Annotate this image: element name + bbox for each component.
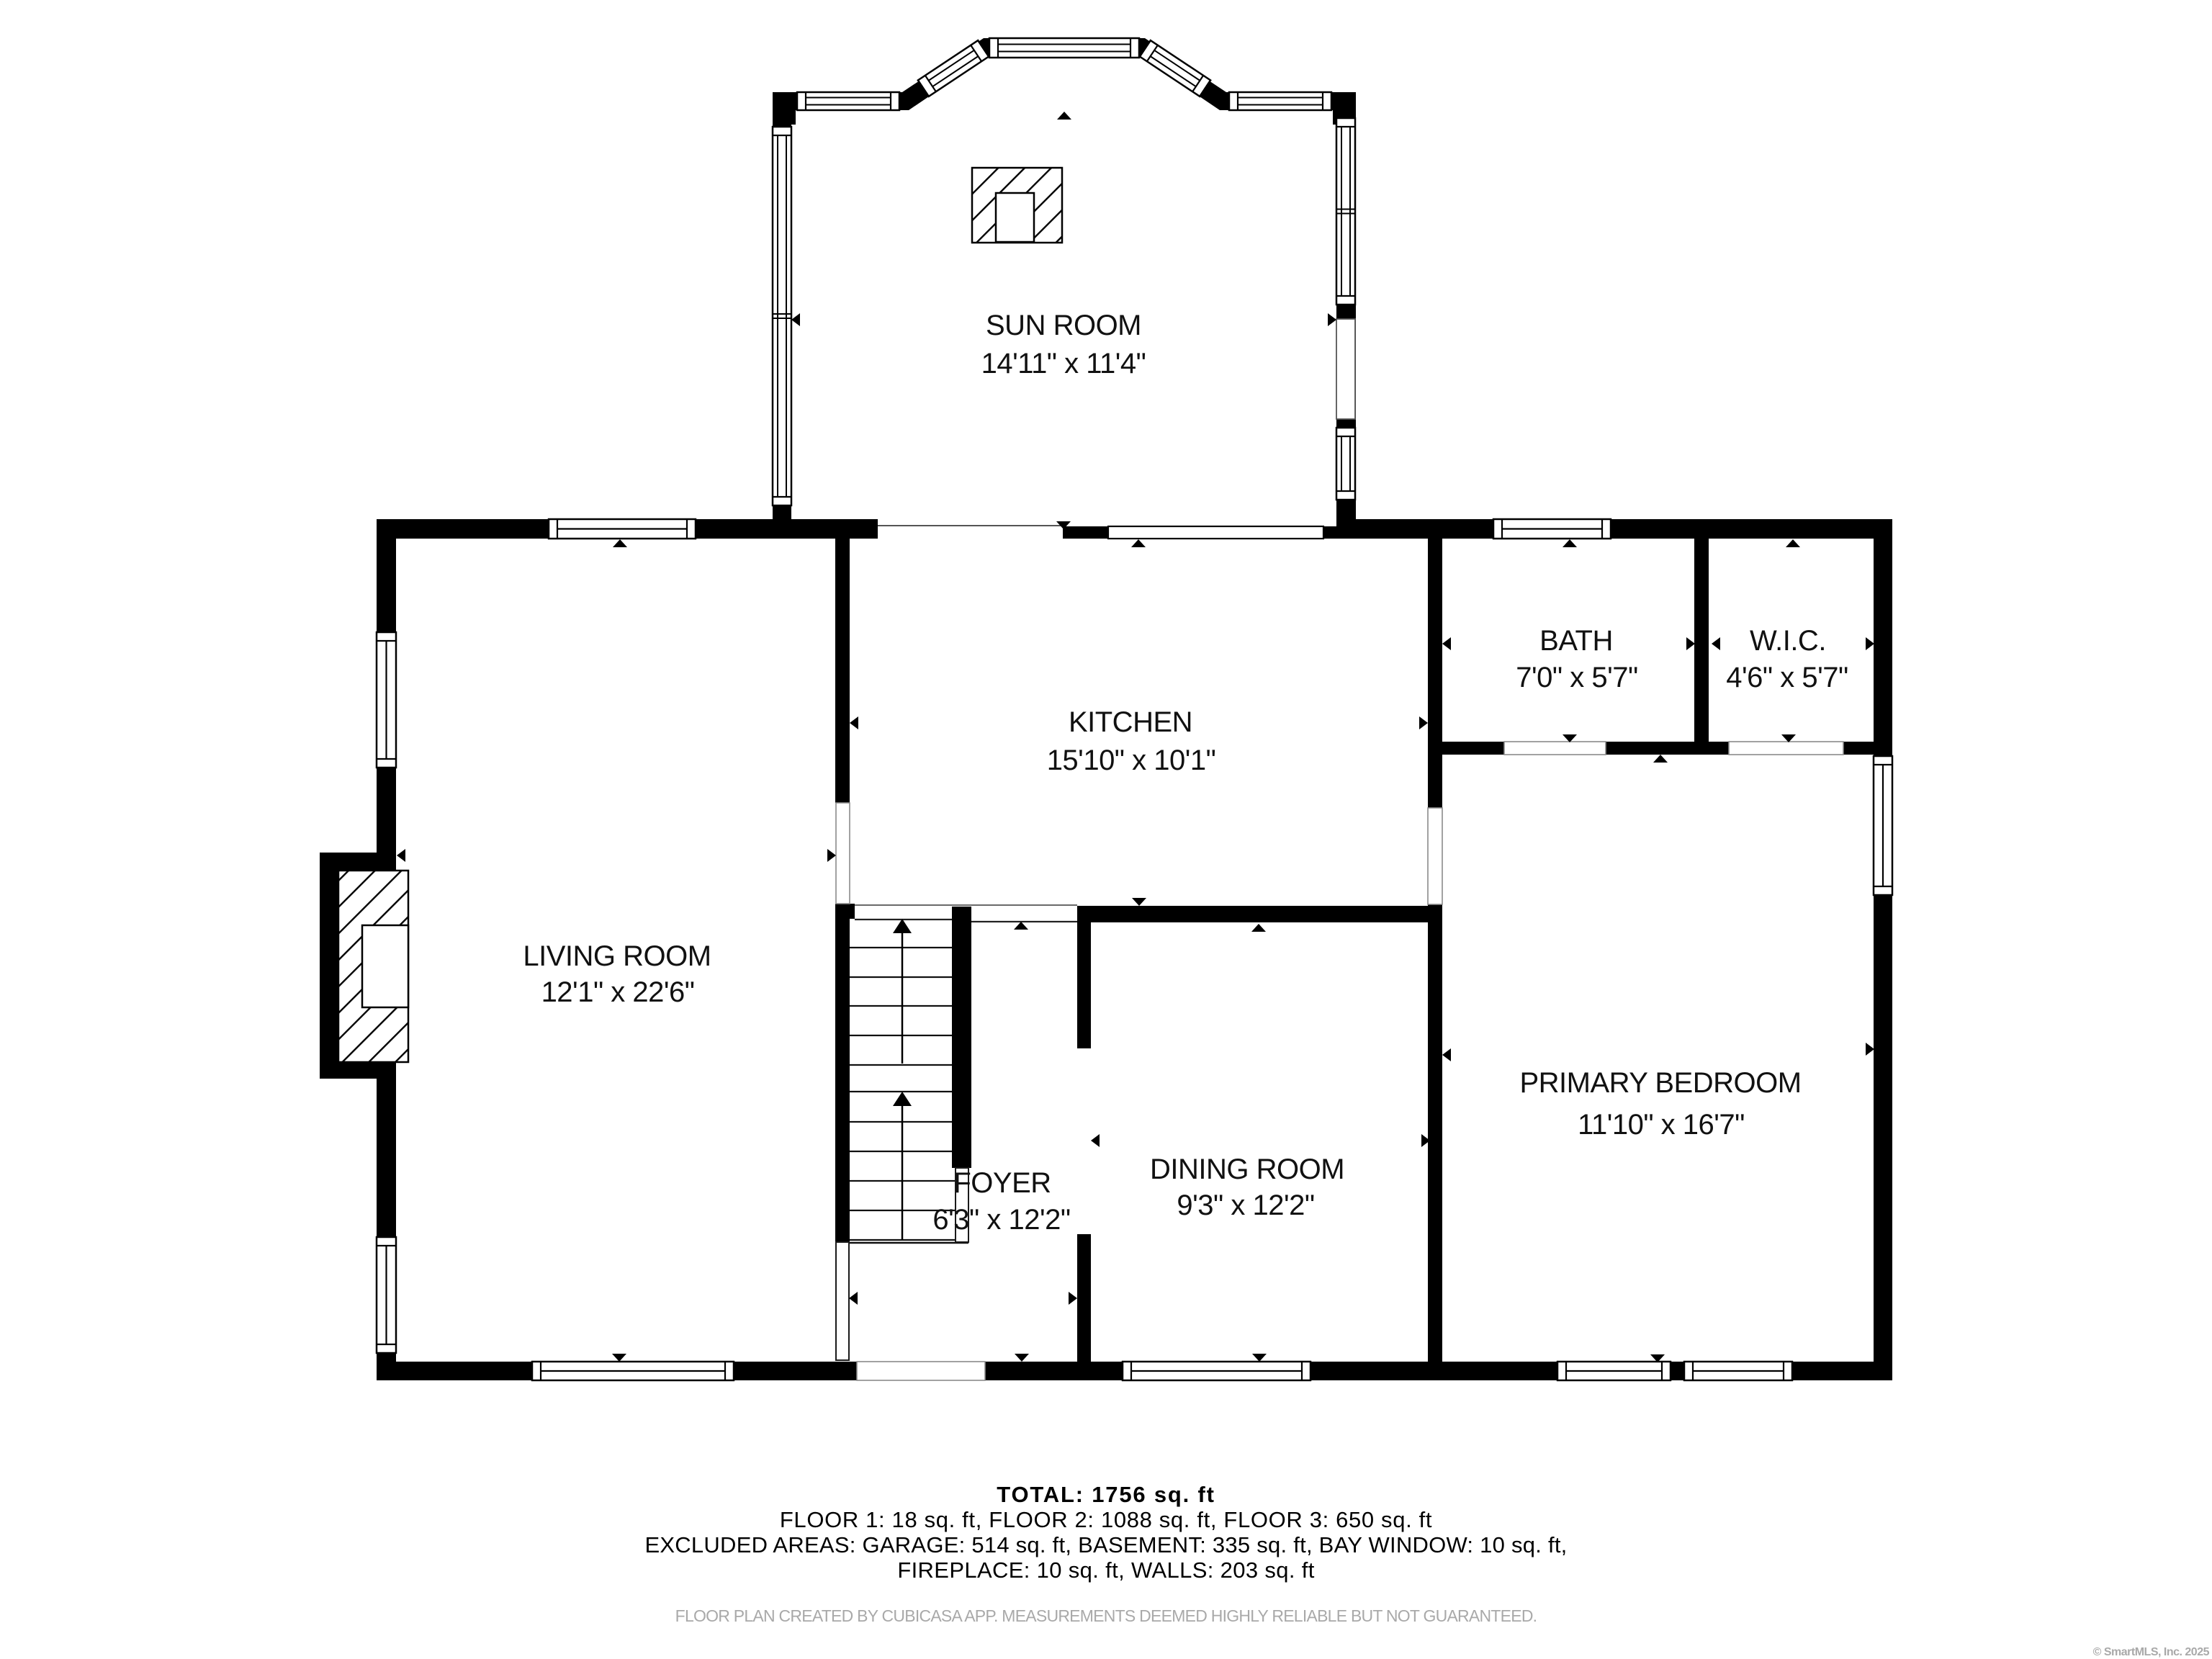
svg-text:FOYER: FOYER	[953, 1167, 1051, 1199]
svg-text:11'10" x 16'7": 11'10" x 16'7"	[1578, 1109, 1745, 1141]
svg-text:SUN ROOM: SUN ROOM	[986, 310, 1141, 341]
svg-text:9'3" x 12'2": 9'3" x 12'2"	[1177, 1190, 1314, 1221]
svg-text:W.I.C.: W.I.C.	[1750, 625, 1826, 657]
svg-text:4'6" x 5'7": 4'6" x 5'7"	[1726, 662, 1848, 693]
svg-text:BATH: BATH	[1539, 625, 1613, 657]
svg-text:KITCHEN: KITCHEN	[1069, 706, 1192, 738]
svg-text:DINING ROOM: DINING ROOM	[1150, 1154, 1344, 1185]
svg-text:PRIMARY BEDROOM: PRIMARY BEDROOM	[1519, 1067, 1801, 1099]
svg-text:FLOOR PLAN CREATED BY CUBICASA: FLOOR PLAN CREATED BY CUBICASA APP. MEAS…	[675, 1606, 1537, 1625]
svg-text:7'0" x 5'7": 7'0" x 5'7"	[1516, 662, 1637, 693]
svg-text:6'3" x 12'2": 6'3" x 12'2"	[932, 1204, 1070, 1236]
svg-text:FLOOR 1: 18 sq. ft, FLOOR 2: 1: FLOOR 1: 18 sq. ft, FLOOR 2: 1088 sq. ft…	[780, 1507, 1432, 1532]
svg-text:EXCLUDED AREAS: GARAGE: 514 sq: EXCLUDED AREAS: GARAGE: 514 sq. ft, BASE…	[644, 1532, 1567, 1557]
svg-text:LIVING ROOM: LIVING ROOM	[523, 940, 711, 972]
svg-text:12'1" x 22'6": 12'1" x 22'6"	[541, 976, 695, 1008]
svg-text:15'10" x 10'1": 15'10" x 10'1"	[1047, 745, 1216, 776]
svg-text:FIREPLACE: 10 sq. ft, WALLS: 2: FIREPLACE: 10 sq. ft, WALLS: 203 sq. ft	[897, 1557, 1314, 1583]
svg-text:14'11" x 11'4": 14'11" x 11'4"	[981, 348, 1146, 379]
svg-text:TOTAL: 1756 sq. ft: TOTAL: 1756 sq. ft	[997, 1482, 1215, 1507]
svg-text:© SmartMLS, Inc. 2025: © SmartMLS, Inc. 2025	[2093, 1646, 2210, 1658]
